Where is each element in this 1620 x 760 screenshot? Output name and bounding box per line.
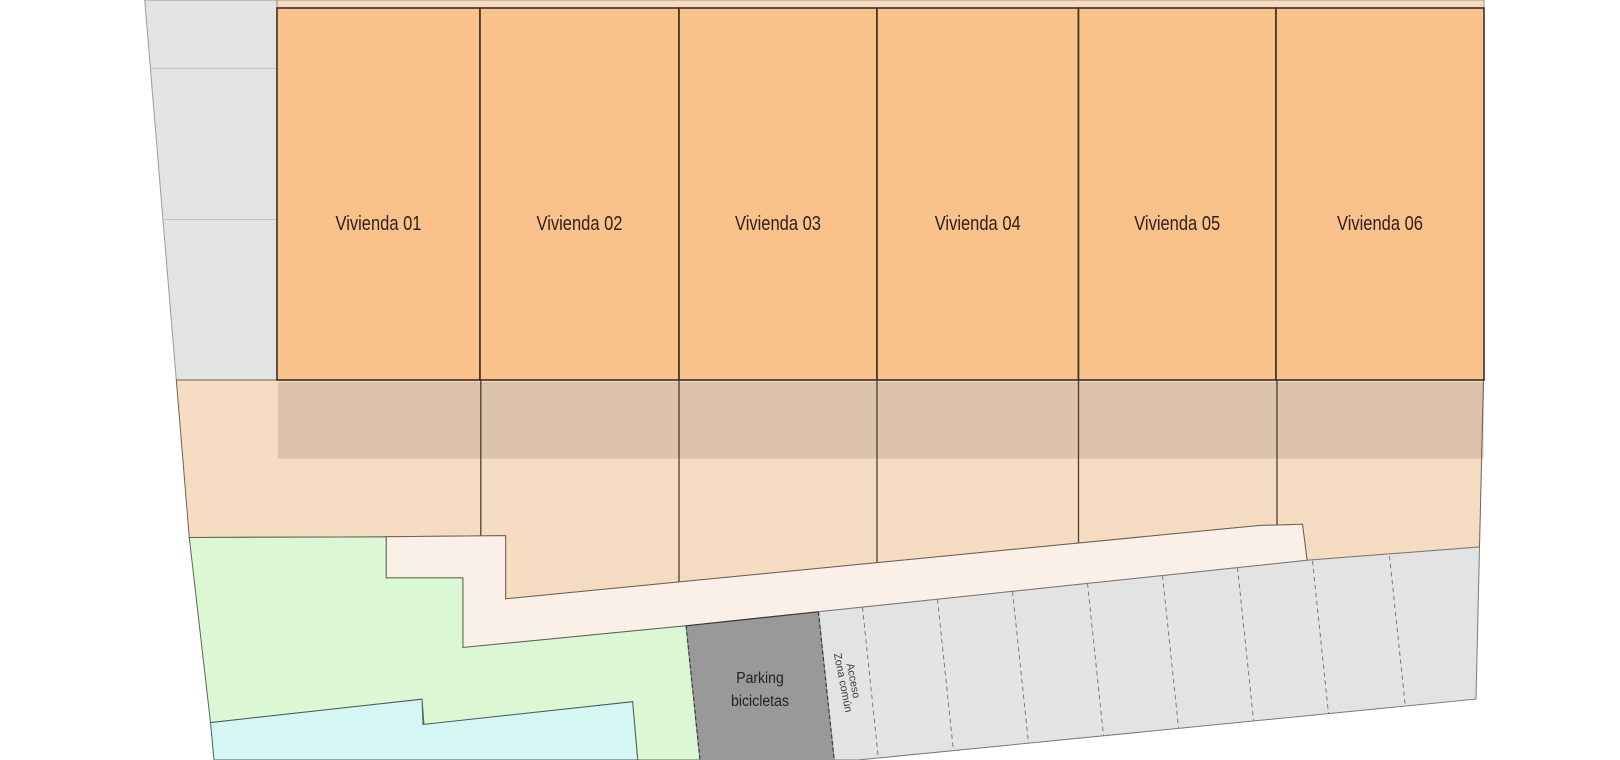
svg-text:Vivienda 01: Vivienda 01 (336, 213, 422, 235)
svg-text:Vivienda 04: Vivienda 04 (935, 213, 1021, 235)
svg-text:Parking: Parking (736, 670, 784, 687)
svg-text:Vivienda 05: Vivienda 05 (1134, 213, 1220, 235)
svg-text:Vivienda 03: Vivienda 03 (735, 213, 821, 235)
svg-text:Vivienda 06: Vivienda 06 (1337, 213, 1423, 235)
svg-text:Vivienda 02: Vivienda 02 (537, 213, 623, 235)
svg-text:bicicletas: bicicletas (731, 693, 789, 710)
